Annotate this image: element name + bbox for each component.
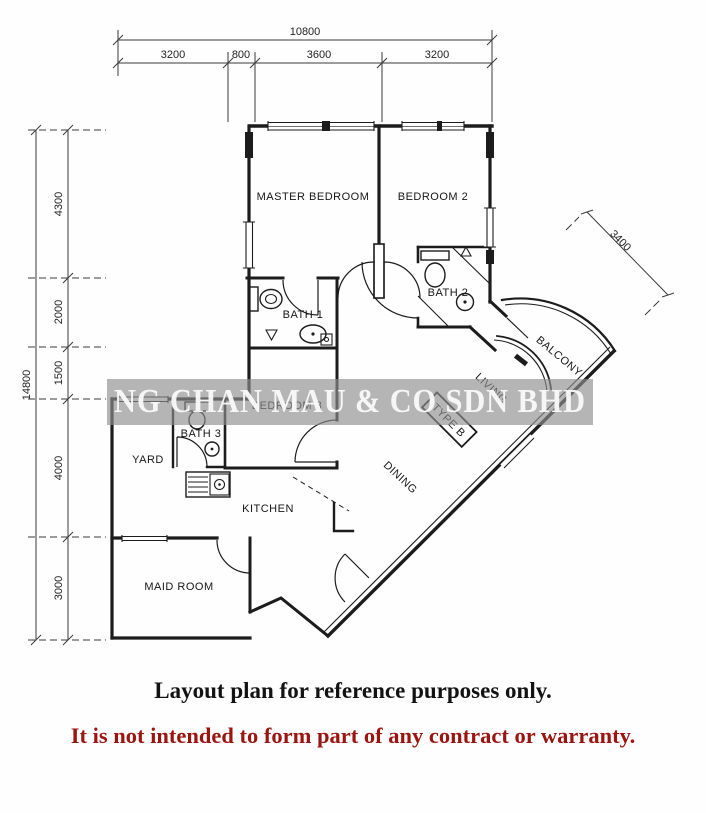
dim-top-seg4: 3200 [425, 49, 449, 61]
label-yard: YARD [132, 454, 164, 466]
dim-left-total: 14800 [21, 370, 33, 401]
wall-pier [245, 132, 253, 158]
dim-top-seg3: 3600 [307, 49, 331, 61]
label-bath3: BATH 3 [181, 428, 222, 440]
label-kitchen: KITCHEN [242, 503, 294, 515]
wall-pier [486, 132, 494, 158]
caption-line1: Layout plan for reference purposes only. [154, 678, 551, 703]
kitchen-dining-dashed-boundary [293, 477, 349, 511]
dimension-top: 10800 3200 800 3600 3200 [113, 26, 497, 122]
wall-pier [486, 250, 494, 264]
label-bath1: BATH 1 [283, 309, 324, 321]
dim-left-seg1: 4300 [53, 192, 65, 216]
floor-plan-canvas: 10800 3200 800 3600 3200 14800 4300 2000 [0, 0, 706, 813]
dimension-left: 14800 4300 2000 1500 4000 3000 [21, 125, 106, 645]
dim-left-seg2: 2000 [53, 300, 65, 324]
dim-left-seg3: 1500 [53, 361, 65, 385]
label-bedroom2: BEDROOM 2 [398, 191, 469, 203]
label-bath2: BATH 2 [428, 287, 469, 299]
label-master-bedroom: MASTER BEDROOM [257, 191, 370, 203]
label-dining: DINING [381, 459, 420, 496]
label-maid-room: MAID ROOM [144, 581, 213, 593]
dim-top-total: 10800 [290, 26, 321, 38]
hall-wall-stub [374, 244, 384, 298]
yard-laundry-sink [186, 472, 230, 497]
dim-top-seg1: 3200 [161, 49, 185, 61]
dim-left-seg4: 4000 [53, 456, 65, 480]
caption-line2: It is not intended to form part of any c… [71, 723, 636, 748]
dim-diagonal-label: 3400 [607, 228, 633, 254]
dim-left-seg5: 3000 [53, 576, 65, 600]
watermark: NG CHAN MAU & CO SDN BHD [107, 379, 593, 425]
label-balcony: BALCONY [534, 334, 585, 379]
dimension-diagonal: 3400 [566, 210, 674, 315]
floor-plan-document: 10800 3200 800 3600 3200 14800 4300 2000 [0, 0, 706, 813]
captions: Layout plan for reference purposes only.… [71, 678, 636, 748]
dim-top-seg2: 800 [232, 49, 250, 61]
watermark-text: NG CHAN MAU & CO SDN BHD [114, 383, 586, 420]
